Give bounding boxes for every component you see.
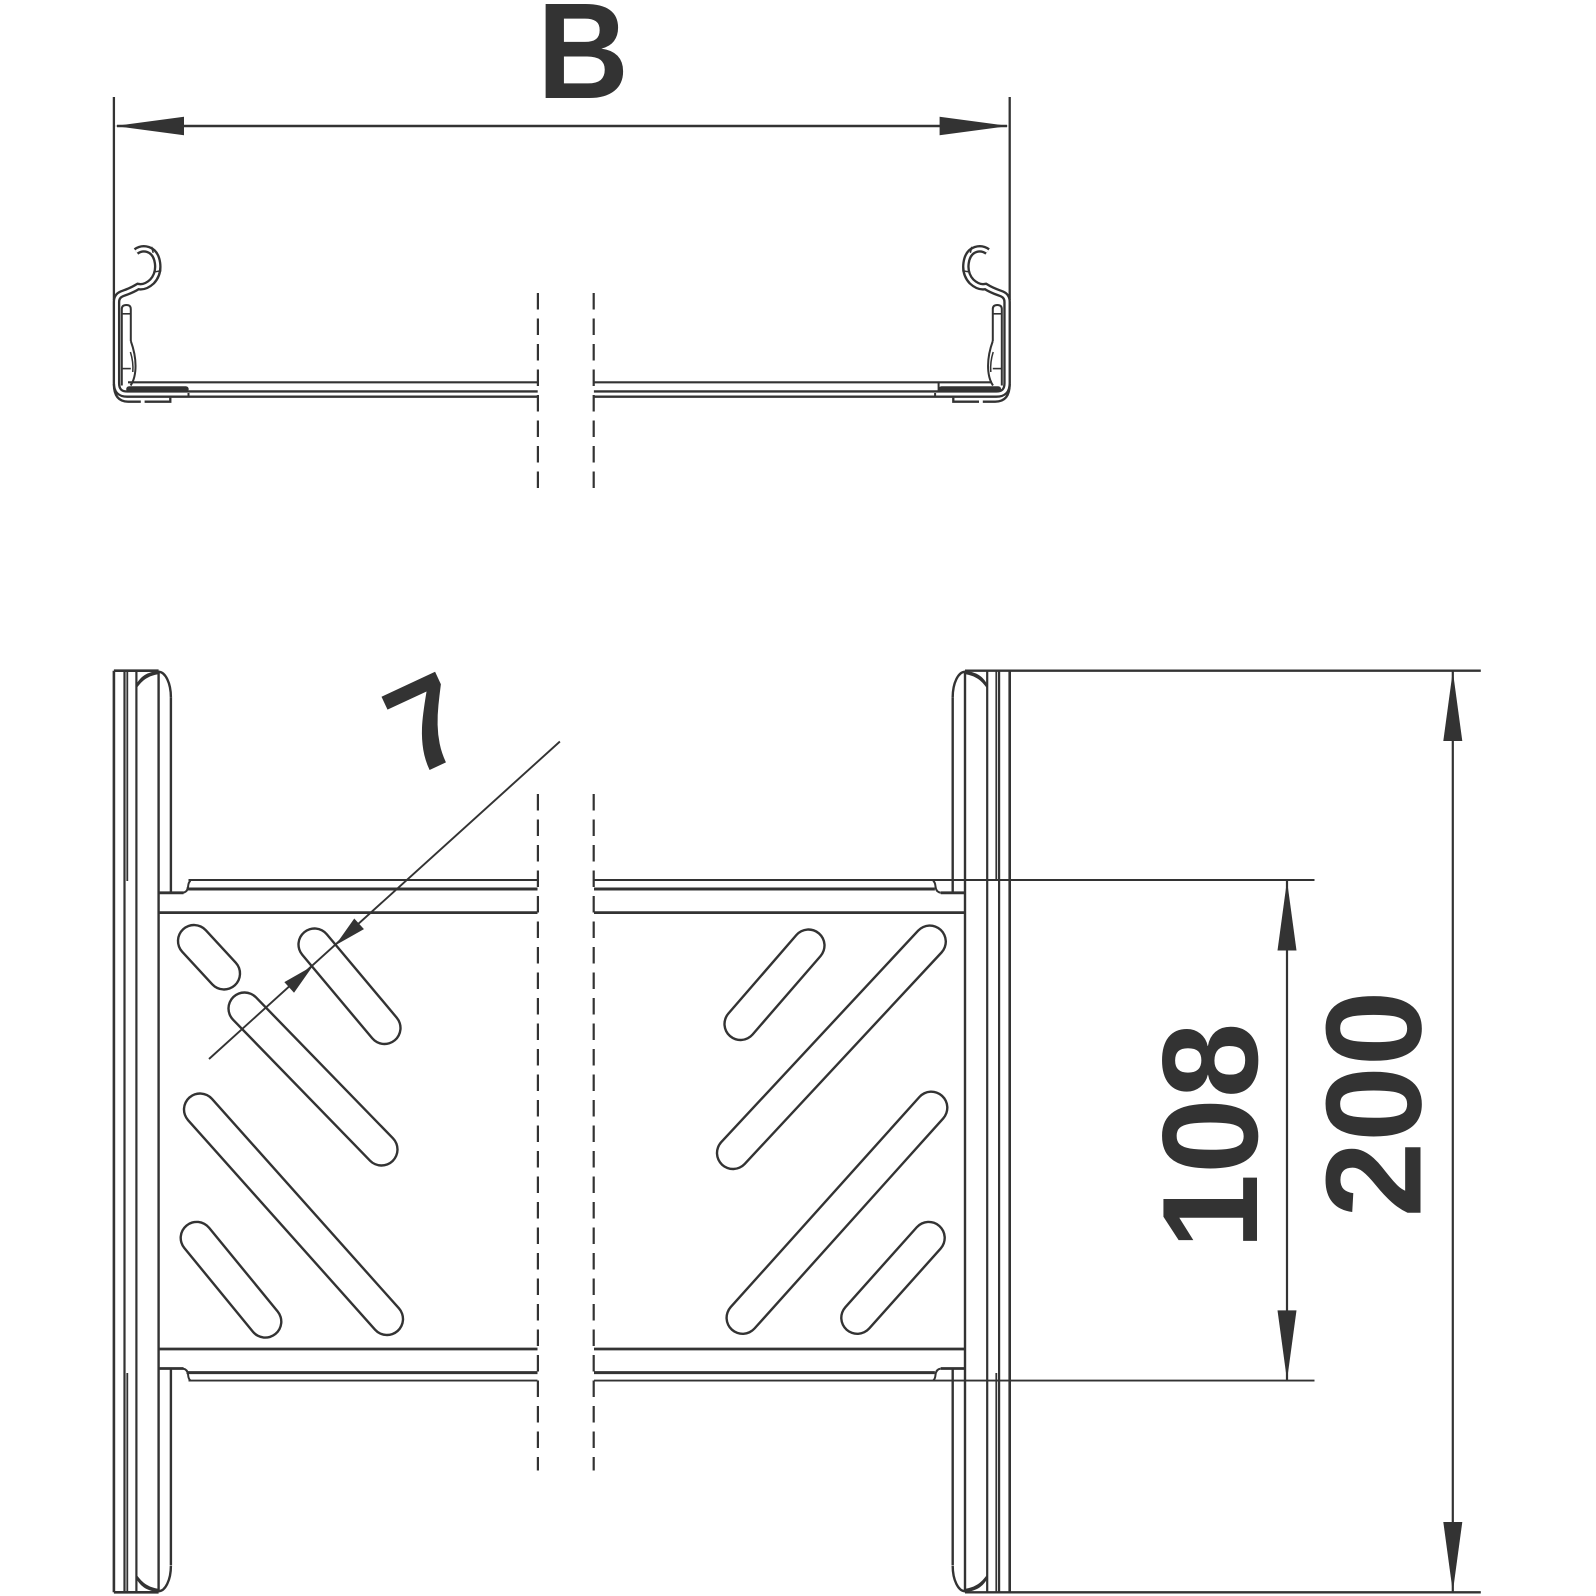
svg-text:B: B — [537, 0, 629, 127]
svg-text:108: 108 — [1134, 1023, 1286, 1250]
svg-text:200: 200 — [1298, 991, 1450, 1218]
